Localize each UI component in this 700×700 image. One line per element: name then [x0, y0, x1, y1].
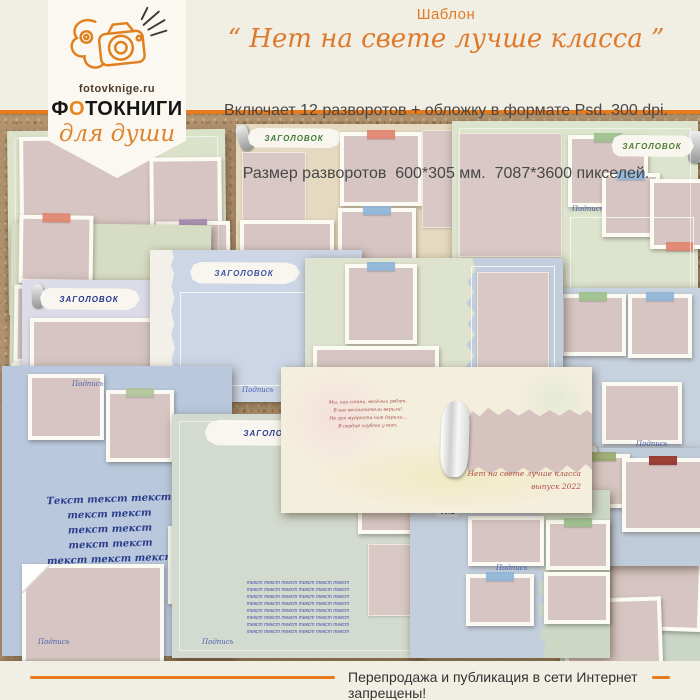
- photo-placeholder: [544, 572, 610, 624]
- text-row: текст текст текст текст текст текст: [200, 615, 396, 622]
- footer-bar: Перепродажа и публикация в сети Интернет…: [0, 661, 700, 700]
- banner-label: ЗАГОЛОВОК: [214, 269, 273, 278]
- text-row: текст текст текст текст текст текст: [200, 608, 396, 615]
- photo-placeholder: [546, 520, 610, 570]
- script-text: Нет на свете лучше классавыпуск 2022: [449, 467, 581, 493]
- spread-bottom-split: ФИОПодпись: [410, 490, 610, 658]
- description-line-2: Размер разворотов 600*305 мм. 7087*3600 …: [200, 163, 692, 184]
- text-row: текст текст текст текст текст текст: [200, 594, 396, 601]
- text-row: текст текст текст текст текст текст: [200, 629, 396, 636]
- photo-placeholder: [22, 564, 164, 661]
- spread-cover: Мы, как сотни, весёлых ребят,В нас воспи…: [281, 367, 592, 513]
- title-banner: ЗАГОЛОВОК: [38, 288, 140, 310]
- photo-placeholder: [622, 458, 700, 532]
- folded-corner: [22, 564, 52, 594]
- photo-caption: Подпись: [636, 440, 668, 448]
- footer-rule-left: [30, 676, 335, 679]
- deco-frame: [570, 217, 694, 293]
- camera-logo-icon: [61, 4, 173, 80]
- description-line-1: Включает 12 разворотов + обложку в форма…: [200, 100, 692, 121]
- photo-placeholder: [106, 390, 174, 462]
- template-kicker: Шаблон: [200, 6, 692, 23]
- photo-placeholder: [560, 294, 626, 356]
- footer-rule-right: [652, 676, 670, 679]
- photo-placeholder: [602, 382, 682, 444]
- photo-caption: Подпись: [202, 638, 234, 646]
- photo-placeholder: [466, 574, 534, 626]
- photo-placeholder: [468, 516, 544, 566]
- photo-placeholder: [19, 215, 94, 284]
- text-row: текст текст текст текст текст текст: [200, 622, 396, 629]
- washi-tape: [486, 572, 514, 581]
- paper-curl: [440, 401, 471, 478]
- photo-caption: Подпись: [242, 386, 274, 394]
- washi-tape: [579, 292, 607, 301]
- page: ЗАГОЛОВОКПодписьЗАГОЛОВОКТекст текст тек…: [0, 0, 700, 700]
- brand-tagline: для души: [48, 121, 186, 147]
- script-line: выпуск 2022: [449, 480, 581, 493]
- brand-name: ФОТОКНИГИ: [48, 98, 186, 121]
- text-rows: текст текст текст текст текст тексттекст…: [200, 580, 396, 636]
- script-line: Нет на свете лучше класса: [449, 467, 581, 480]
- title-banner: ЗАГОЛОВОК: [188, 262, 300, 284]
- template-title: “ Нет на свете лучше класса ”: [200, 24, 692, 54]
- washi-tape: [646, 292, 674, 301]
- washi-tape: [126, 388, 154, 397]
- text-row: текст текст текст текст текст текст: [200, 601, 396, 608]
- washi-tape: [367, 262, 395, 271]
- header-text: Шаблон “ Нет на свете лучше класса ” Вкл…: [200, 6, 692, 226]
- brand-part: ТОКНИГИ: [85, 98, 183, 120]
- washi-tape: [42, 213, 70, 222]
- template-description: Включает 12 разворотов + обложку в форма…: [200, 58, 692, 226]
- text-row: текст текст текст текст текст текст: [200, 587, 396, 594]
- photo-caption: Подпись: [496, 564, 528, 572]
- washi-tape: [564, 518, 592, 527]
- text-row: текст текст текст текст текст текст: [200, 580, 396, 587]
- aperture-o-icon: О: [69, 98, 85, 120]
- script-line: В сердце глубоко у всех.: [303, 422, 433, 432]
- site-url: fotovknige.ru: [48, 83, 186, 95]
- photo-caption: Подпись: [72, 380, 104, 388]
- script-text: Мы, как сотни, весёлых ребят,В нас воспи…: [303, 398, 434, 432]
- washi-tape: [588, 452, 616, 461]
- brand-part: Ф: [51, 98, 69, 120]
- banner-label: ЗАГОЛОВОК: [59, 295, 118, 304]
- photo-placeholder: [628, 294, 692, 358]
- washi-tape: [649, 456, 677, 465]
- footer-notice: Перепродажа и публикация в сети Интернет…: [348, 669, 700, 700]
- photo-placeholder: [345, 264, 417, 344]
- logo-badge: fotovknige.ru ФОТОКНИГИ для души: [48, 0, 186, 178]
- photo-caption: Подпись: [38, 638, 70, 646]
